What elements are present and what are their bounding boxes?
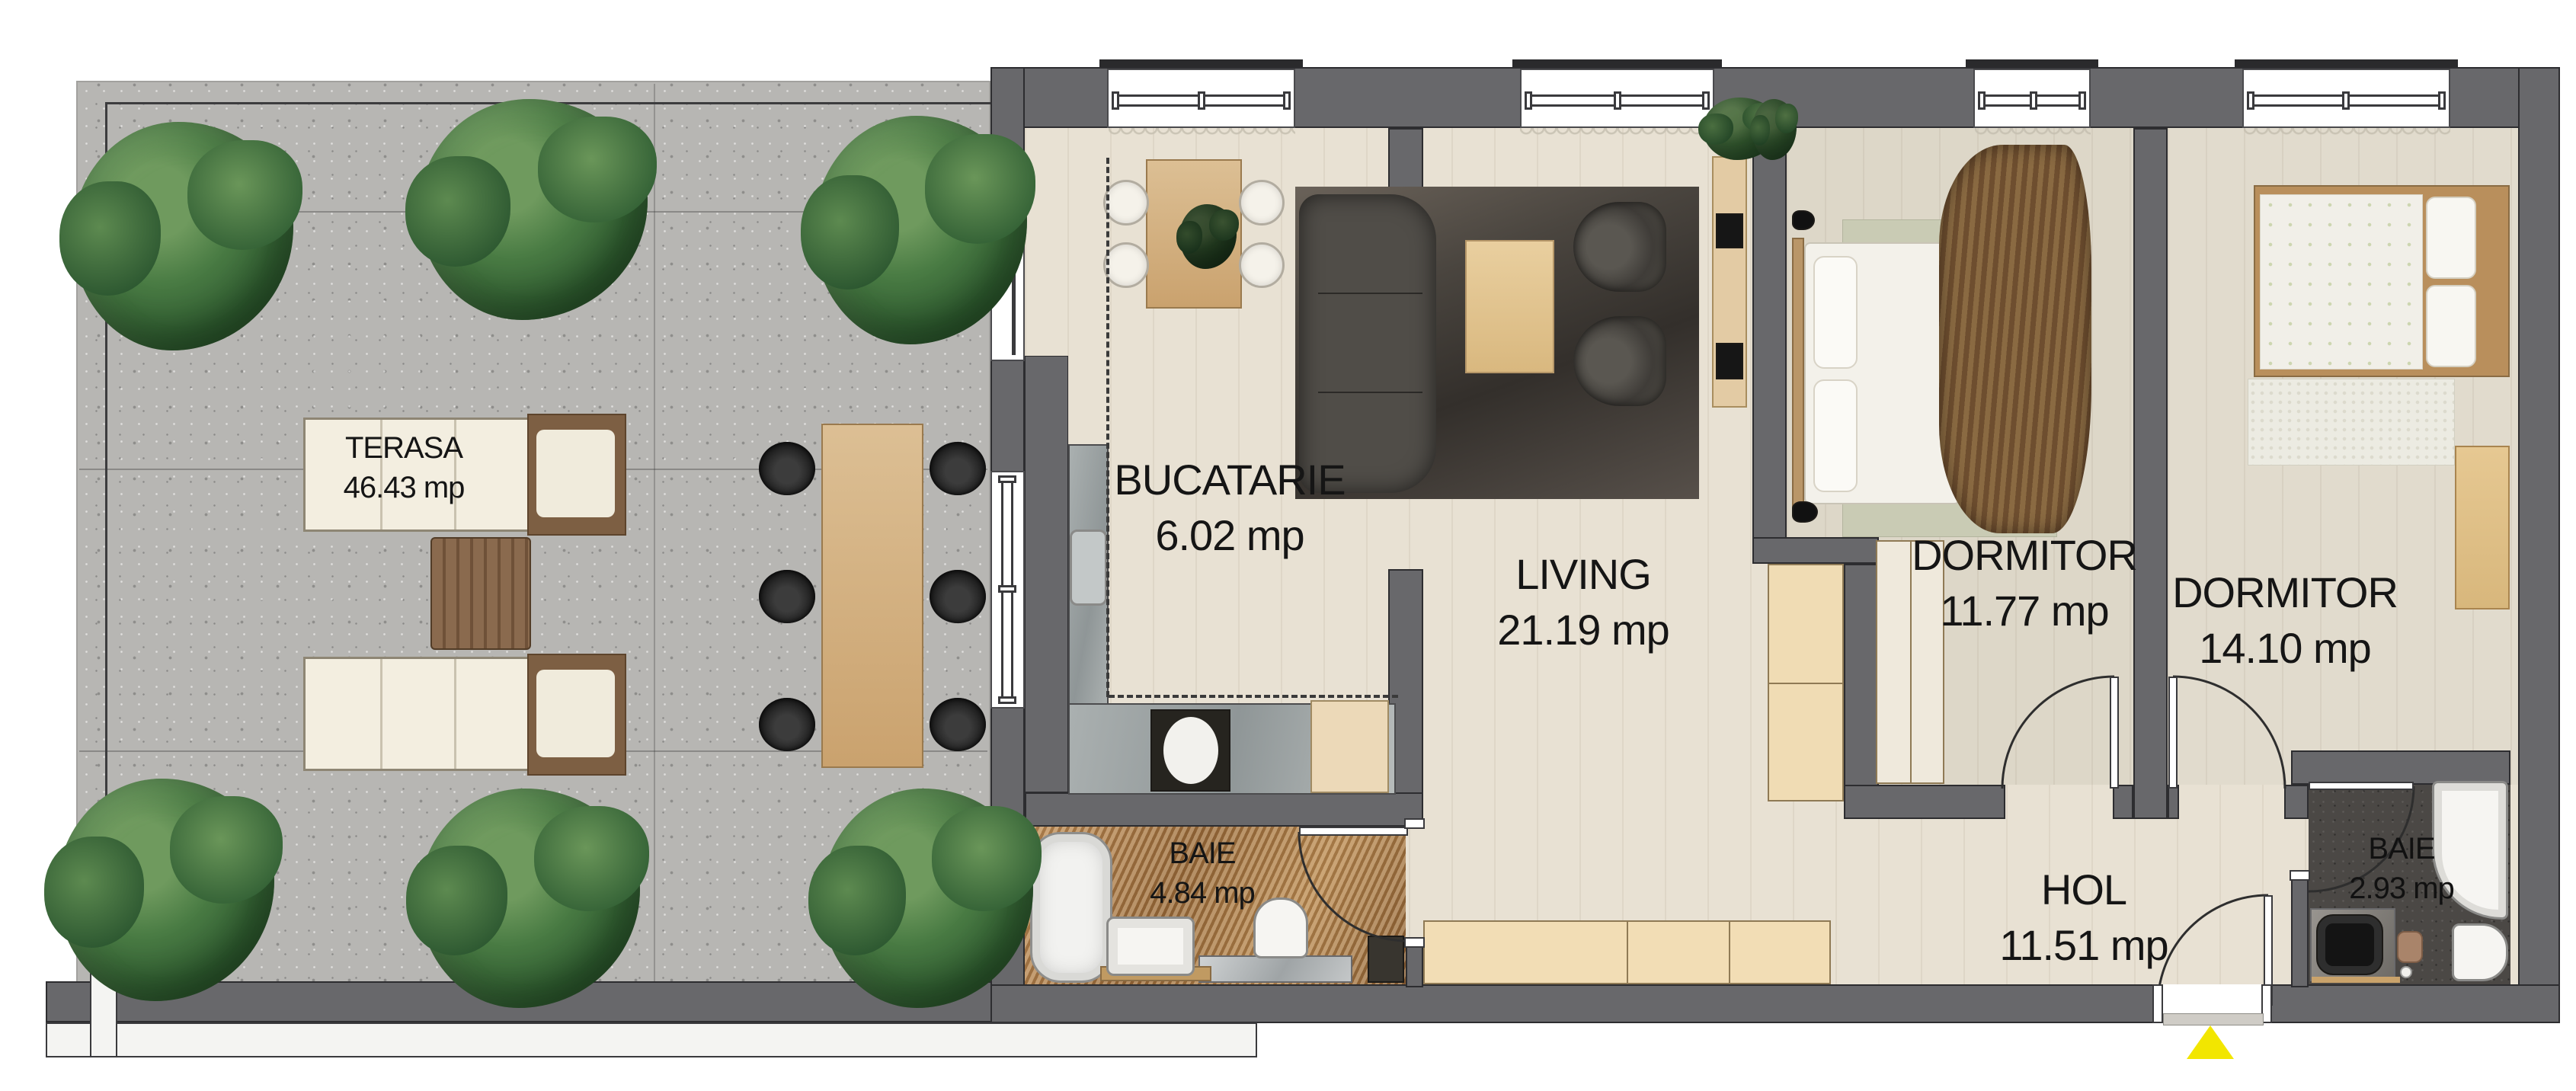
- bath1-sink: [1106, 917, 1195, 976]
- wall-bottom: [990, 984, 2162, 1023]
- bed1-headboard: [1792, 238, 1804, 509]
- coffee-table: [1465, 240, 1554, 373]
- room-area: 4.84 mp: [1150, 873, 1255, 913]
- curtain: [2244, 128, 2450, 137]
- wall-bath1-right-low: [1406, 943, 1423, 987]
- kitchen-wall-pilaster: [1025, 356, 1068, 792]
- bed1-sconce: [1792, 210, 1815, 230]
- bed2-rug: [2248, 379, 2455, 466]
- bath1-toilet: [1253, 897, 1308, 958]
- kitchen-cooktop-basin: [1163, 717, 1218, 784]
- wall-bed1-bottom: [1844, 785, 2005, 819]
- curtain: [1520, 128, 1714, 137]
- tv-console-speaker: [1716, 213, 1743, 248]
- terrace-seam: [654, 84, 655, 983]
- bath2-tray: [2397, 931, 2423, 963]
- terrace-chair: [759, 570, 815, 623]
- window-sill: [1966, 59, 2098, 67]
- door-leaf-baie1: [1299, 827, 1408, 836]
- room-label-baie2: BAIE 2.93 mp: [2349, 829, 2454, 908]
- dining-chair: [1103, 242, 1149, 288]
- window-left-baie-kitchen: [990, 471, 1025, 709]
- terrace-chair: [759, 442, 815, 495]
- wall-bed1-bed2: [2133, 128, 2168, 819]
- terrace-chair: [759, 698, 815, 751]
- bed2-pillow: [2426, 197, 2476, 279]
- room-area: 46.43 mp: [344, 468, 465, 507]
- room-name: HOL: [1999, 862, 2168, 918]
- room-name: BAIE: [1150, 833, 1255, 873]
- terrace-dining-table: [821, 424, 923, 768]
- curtain: [1109, 128, 1295, 137]
- bed2-duvet: [2260, 194, 2423, 370]
- wall-bottom: [2264, 984, 2560, 1023]
- living-sofa: [1299, 194, 1436, 493]
- bed1-pillow: [1813, 379, 1858, 492]
- kitchen-fridge: [1310, 700, 1389, 793]
- dining-chair: [1103, 180, 1149, 226]
- window-kitchen: [1107, 69, 1295, 128]
- bed2-pillow: [2426, 285, 2476, 367]
- bath2-sink-black: [2316, 914, 2383, 975]
- living-armchair: [1573, 202, 1666, 292]
- terrace-chair: [930, 442, 986, 495]
- room-label-living: LIVING 21.19 mp: [1497, 547, 1669, 658]
- wall-bed1-left-low: [1844, 564, 1879, 819]
- sliding-door-glyph: [1012, 270, 1016, 355]
- hol-niche-cabinet: [1768, 564, 1844, 801]
- dining-chair: [1239, 242, 1285, 288]
- dining-chair: [1239, 180, 1285, 226]
- living-armchair: [1573, 316, 1666, 406]
- terrace-balustrade: [46, 1022, 1257, 1057]
- overhead-cabinet-line: [1106, 158, 1109, 697]
- curtain: [1975, 128, 2091, 137]
- window-dormitor2: [2242, 69, 2450, 128]
- bed1-blanket: [1939, 145, 2091, 533]
- room-name: BUCATARIE: [1114, 453, 1345, 508]
- hol-wardrobe: [1423, 920, 1831, 984]
- wall-bed2-bath2: [2291, 750, 2510, 785]
- wall-kitchen-bath1: [1025, 792, 1423, 827]
- window-glyph: [1981, 94, 2083, 107]
- sun-lounger: [303, 657, 533, 771]
- bath1-storage: [1368, 936, 1404, 983]
- window-sill: [2235, 59, 2458, 67]
- wall-right: [2518, 67, 2560, 1023]
- room-name: BAIE: [2349, 829, 2454, 869]
- wall-bed2-bottom-jamb: [2168, 785, 2179, 819]
- floorplan-canvas: { "rooms": { "terasa": {"name": "TERASA"…: [0, 0, 2576, 1091]
- wall-hol-bath2: [2291, 876, 2309, 987]
- wall-living-bed1: [1752, 128, 1787, 564]
- bed1-sconce: [1792, 501, 1818, 523]
- window-sill: [1099, 59, 1303, 67]
- room-name: DORMITOR: [2172, 565, 2398, 621]
- terrace-side-table: [430, 537, 531, 650]
- kitchen-sink: [1070, 530, 1107, 606]
- door-jamb: [2152, 984, 2163, 1023]
- door-jamb: [1404, 937, 1425, 948]
- window-glyph: [1001, 478, 1013, 701]
- window-dormitor1: [1973, 69, 2091, 128]
- bathtub: [1030, 832, 1112, 983]
- room-area: 14.10 mp: [2172, 621, 2398, 677]
- window-sill: [1512, 59, 1722, 67]
- room-label-dormitor1: DORMITOR 11.77 mp: [1912, 528, 2137, 639]
- window-glyph: [1528, 94, 1707, 107]
- room-label-hol: HOL 11.51 mp: [1999, 862, 2168, 974]
- room-name: LIVING: [1497, 547, 1669, 603]
- door-leaf-dormitor2: [2168, 677, 2178, 789]
- entrance-arrow-icon: [2187, 1025, 2234, 1059]
- terrace-chair: [930, 698, 986, 751]
- room-area: 21.19 mp: [1497, 603, 1669, 658]
- door-leaf-dormitor1: [2110, 677, 2119, 789]
- window-glyph: [1115, 94, 1288, 107]
- window-glyph: [2250, 94, 2443, 107]
- bed1-pillow: [1813, 256, 1858, 369]
- door-jamb: [2290, 870, 2310, 881]
- room-label-terasa: TERASA 46.43 mp: [344, 428, 465, 507]
- bedroom2-dresser: [2455, 446, 2510, 609]
- tv-console-speaker: [1716, 343, 1743, 379]
- door-leaf-baie2: [2309, 782, 2414, 790]
- terrace-chair: [930, 570, 986, 623]
- room-label-bucatarie: BUCATARIE 6.02 mp: [1114, 453, 1345, 564]
- room-name: DORMITOR: [1912, 528, 2137, 584]
- wall-bed2-bottom-jamb: [2284, 785, 2309, 819]
- sun-lounger-head: [527, 654, 626, 776]
- room-name: TERASA: [344, 428, 465, 468]
- bath2-toilet: [2452, 923, 2508, 981]
- bath1-toilet-plinth: [1198, 955, 1352, 983]
- room-area: 2.93 mp: [2349, 869, 2454, 908]
- room-area: 6.02 mp: [1114, 508, 1345, 564]
- room-area: 11.51 mp: [1999, 918, 2168, 974]
- door-jamb: [1404, 818, 1425, 829]
- room-label-dormitor2: DORMITOR 14.10 mp: [2172, 565, 2398, 677]
- wall-bed1-jog: [1752, 537, 1879, 564]
- bath2-roll: [2400, 966, 2412, 978]
- overhead-cabinet-line: [1109, 695, 1398, 698]
- entrance-threshold: [2163, 1013, 2264, 1025]
- room-label-baie1: BAIE 4.84 mp: [1150, 833, 1255, 913]
- room-area: 11.77 mp: [1912, 584, 2137, 639]
- wall-bed1-bottom-jamb: [2113, 785, 2133, 819]
- window-living: [1520, 69, 1714, 128]
- bath2-mat: [2312, 977, 2400, 983]
- sun-lounger-head: [527, 414, 626, 536]
